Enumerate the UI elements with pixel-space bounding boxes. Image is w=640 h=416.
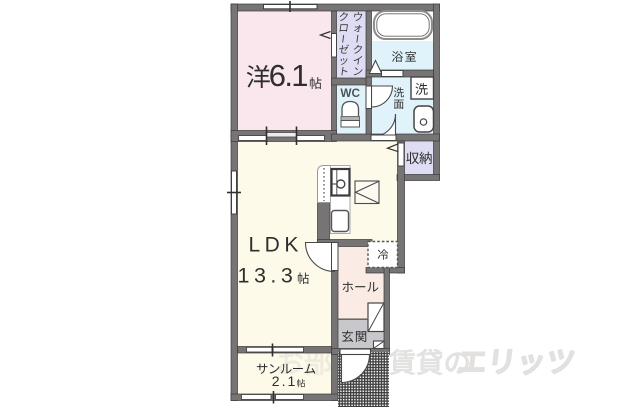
svg-text:2.1: 2.1	[272, 373, 297, 389]
svg-text:WC: WC	[340, 86, 360, 100]
svg-text:6.1: 6.1	[269, 58, 307, 93]
svg-text:13.3: 13.3	[238, 264, 298, 288]
svg-text:LDK: LDK	[249, 234, 303, 257]
